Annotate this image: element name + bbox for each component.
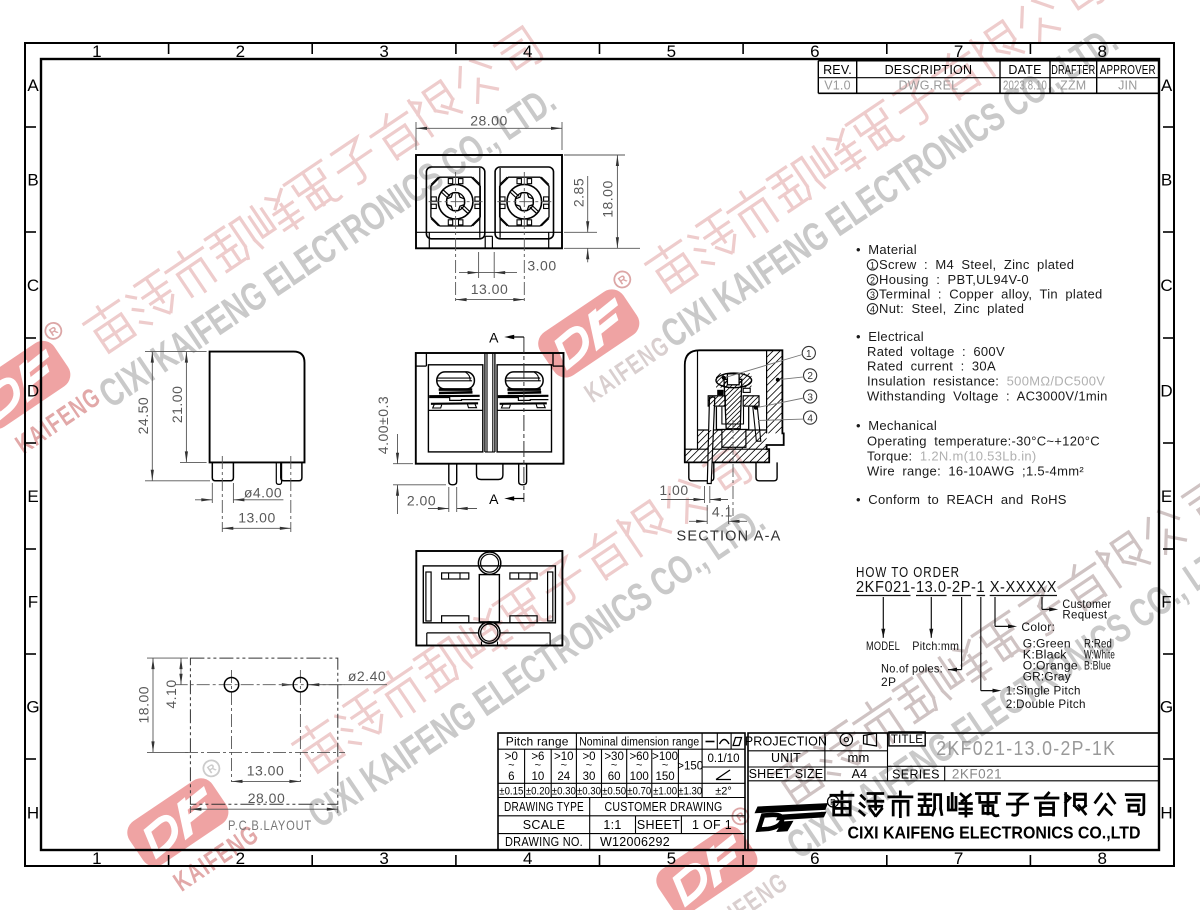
svg-text:1: 1 — [806, 349, 812, 360]
svg-text:2:Double Pitch: 2:Double Pitch — [1006, 697, 1086, 711]
svg-text:28.00: 28.00 — [248, 790, 286, 806]
svg-text:10: 10 — [532, 771, 545, 783]
svg-text:~: ~ — [561, 760, 567, 772]
svg-text:7: 7 — [954, 849, 963, 868]
svg-text:~: ~ — [508, 760, 514, 772]
svg-text:3: 3 — [870, 290, 875, 300]
svg-text:±0.30: ±0.30 — [552, 786, 576, 798]
svg-text:DRAWING TYPE: DRAWING TYPE — [504, 800, 584, 814]
svg-text:MODEL: MODEL — [866, 639, 900, 653]
svg-text:4.1: 4.1 — [712, 504, 733, 520]
svg-text:DRAFTER: DRAFTER — [1051, 63, 1095, 77]
svg-text:APPROVER: APPROVER — [1100, 63, 1156, 77]
svg-text:13.00: 13.00 — [471, 281, 509, 297]
svg-text:2.00: 2.00 — [407, 493, 436, 509]
svg-text:2: 2 — [236, 849, 245, 868]
svg-text:3: 3 — [807, 392, 813, 403]
svg-text:13.00: 13.00 — [247, 763, 285, 779]
svg-text:2KF021-13.0-2P-1 X-XXXXX: 2KF021-13.0-2P-1 X-XXXXX — [856, 579, 1057, 596]
svg-text:GR:Gray: GR:Gray — [1023, 672, 1071, 684]
svg-text:• Conform to REACH and RoHS: • Conform to REACH and RoHS — [856, 492, 1067, 507]
svg-text:24: 24 — [557, 771, 570, 783]
svg-text:JIN: JIN — [1118, 79, 1137, 93]
svg-text:3: 3 — [379, 849, 388, 868]
svg-text:4: 4 — [870, 305, 875, 315]
svg-text:18.00: 18.00 — [136, 686, 152, 724]
svg-text:1: 1 — [92, 42, 101, 61]
svg-text:24.50: 24.50 — [135, 397, 151, 435]
svg-text:3.00: 3.00 — [527, 258, 556, 274]
svg-text:V1.0: V1.0 — [824, 79, 851, 93]
svg-text:150: 150 — [656, 771, 675, 783]
svg-text:F: F — [1161, 593, 1171, 612]
svg-text:G: G — [26, 698, 39, 717]
svg-text:4.10: 4.10 — [163, 679, 179, 708]
svg-text:A: A — [489, 330, 499, 346]
svg-text:C: C — [1160, 276, 1172, 295]
svg-text:~: ~ — [535, 760, 541, 772]
svg-text:28.00: 28.00 — [470, 113, 508, 129]
svg-text:ø4.00: ø4.00 — [244, 485, 282, 501]
svg-text:TITLE: TITLE — [891, 734, 923, 746]
svg-text:Pitch:mm: Pitch:mm — [912, 639, 959, 653]
svg-text:G: G — [1160, 698, 1173, 717]
svg-text:SERIES: SERIES — [892, 768, 940, 782]
svg-text:ø2.40: ø2.40 — [348, 668, 386, 684]
svg-text:6: 6 — [810, 849, 819, 868]
svg-text:Operating temperature:-30°C~+1: Operating temperature:-30°C~+120°C — [867, 434, 1100, 449]
svg-text:F: F — [28, 593, 38, 612]
svg-text:Rated voltage : 600V: Rated voltage : 600V — [867, 344, 1005, 359]
svg-text:PROJECTION: PROJECTION — [745, 735, 828, 749]
svg-text:±0.30: ±0.30 — [577, 786, 601, 798]
svg-text:±0.15: ±0.15 — [499, 786, 523, 798]
svg-text:D: D — [1160, 382, 1172, 401]
svg-text:H: H — [1160, 804, 1172, 823]
svg-text:2KF021: 2KF021 — [952, 767, 1002, 782]
svg-text:5: 5 — [667, 849, 676, 868]
svg-text:18.00: 18.00 — [600, 180, 616, 218]
svg-text:~: ~ — [662, 760, 668, 772]
svg-text:Torque: 1.2N.m(10.53Lb.in): Torque: 1.2N.m(10.53Lb.in) — [867, 449, 1037, 464]
svg-text:ZZM: ZZM — [1060, 79, 1086, 93]
svg-text:Request: Request — [1062, 608, 1107, 622]
svg-text:60: 60 — [608, 771, 621, 783]
svg-text:Nut: Steel, Zinc plated: Nut: Steel, Zinc plated — [879, 301, 1024, 316]
svg-text:~: ~ — [611, 760, 617, 772]
svg-text:±0.70: ±0.70 — [627, 786, 651, 798]
svg-text:1 OF 1: 1 OF 1 — [692, 818, 732, 832]
svg-text:CUSTOMER DRAWING: CUSTOMER DRAWING — [605, 800, 723, 814]
svg-text:±1.00: ±1.00 — [653, 786, 677, 798]
svg-text:A4: A4 — [852, 767, 868, 781]
svg-text:DATE: DATE — [1008, 63, 1041, 77]
svg-text:30: 30 — [583, 771, 596, 783]
svg-text:W12006292: W12006292 — [600, 835, 670, 849]
svg-text:SCALE: SCALE — [523, 818, 566, 832]
svg-text:21.00: 21.00 — [169, 386, 185, 424]
svg-text:Insulation resistance: 500MΩ/D: Insulation resistance: 500MΩ/DC500V — [867, 374, 1105, 389]
svg-text:Housing : PBT,UL94V-0: Housing : PBT,UL94V-0 — [879, 272, 1029, 287]
svg-text:5: 5 — [667, 42, 676, 61]
svg-text:B: B — [1161, 171, 1172, 190]
svg-text:• Mechanical: • Mechanical — [856, 418, 937, 433]
svg-text:1: 1 — [870, 261, 875, 271]
svg-text:DWG.REL: DWG.REL — [899, 79, 959, 93]
svg-text:~: ~ — [586, 760, 592, 772]
svg-text:Pitch range: Pitch range — [506, 735, 569, 749]
svg-text:8: 8 — [1097, 849, 1106, 868]
svg-text:13.00: 13.00 — [238, 510, 276, 526]
svg-text:Screw : M4 Steel, Zinc plated: Screw : M4 Steel, Zinc plated — [879, 257, 1074, 272]
svg-text:mm: mm — [847, 750, 869, 765]
svg-text:6: 6 — [508, 771, 514, 783]
svg-text:SHEET SIZE: SHEET SIZE — [749, 767, 824, 781]
svg-text:Withstanding Voltage : AC3000V: Withstanding Voltage : AC3000V/1min — [867, 389, 1108, 404]
svg-text:4: 4 — [523, 42, 532, 61]
svg-text:Terminal : Copper alloy, Tin p: Terminal : Copper alloy, Tin plated — [879, 287, 1103, 302]
svg-text:Nominal dimension range: Nominal dimension range — [579, 737, 699, 749]
svg-text:2: 2 — [807, 371, 813, 382]
svg-text:1:Single Pitch: 1:Single Pitch — [1006, 684, 1081, 698]
svg-text:DRAWING NO.: DRAWING NO. — [505, 835, 583, 849]
svg-text:2KF021-13.0-2P-1K: 2KF021-13.0-2P-1K — [936, 738, 1116, 760]
svg-text:1: 1 — [92, 849, 101, 868]
svg-text:2.85: 2.85 — [571, 178, 587, 207]
svg-text:8: 8 — [1097, 42, 1106, 61]
svg-text:4: 4 — [807, 413, 813, 424]
svg-text:B:Blue: B:Blue — [1084, 661, 1111, 673]
svg-text:2023.8.10: 2023.8.10 — [1003, 79, 1047, 93]
svg-text:A: A — [1161, 76, 1173, 95]
svg-text:Color:: Color: — [1021, 620, 1055, 634]
svg-text:SECTION A-A: SECTION A-A — [676, 529, 781, 545]
svg-text:±0.20: ±0.20 — [526, 786, 550, 798]
svg-text:Wire range: 16-10AWG ;1.5-4mm²: Wire range: 16-10AWG ;1.5-4mm² — [867, 464, 1084, 479]
svg-text:>150: >150 — [677, 761, 703, 773]
svg-text:1.00: 1.00 — [659, 482, 688, 498]
svg-text:• Material: • Material — [856, 242, 917, 257]
svg-text:B: B — [27, 171, 38, 190]
svg-text:~: ~ — [636, 760, 642, 772]
svg-text:±0.50: ±0.50 — [602, 786, 626, 798]
svg-text:D: D — [27, 382, 39, 401]
svg-text:±1.30: ±1.30 — [678, 786, 702, 798]
svg-text:3: 3 — [379, 42, 388, 61]
svg-text:No.of poles:: No.of poles: — [881, 662, 943, 676]
svg-text:E: E — [27, 487, 38, 506]
svg-text:6: 6 — [810, 42, 819, 61]
svg-text:2P: 2P — [881, 675, 896, 689]
svg-text:DESCRIPTION: DESCRIPTION — [885, 63, 973, 77]
svg-text:H: H — [27, 804, 39, 823]
svg-text:C: C — [27, 276, 39, 295]
svg-text:4.00±0.3: 4.00±0.3 — [375, 396, 391, 454]
svg-text:CIXI KAIFENG ELECTRONICS CO.,L: CIXI KAIFENG ELECTRONICS CO.,LTD — [848, 823, 1141, 843]
svg-text:Rated current : 30A: Rated current : 30A — [867, 359, 996, 374]
svg-text:E: E — [1161, 487, 1172, 506]
svg-text:• Electrical: • Electrical — [856, 329, 924, 344]
svg-text:100: 100 — [630, 771, 649, 783]
svg-text:UNIT: UNIT — [771, 751, 801, 765]
svg-text:2: 2 — [236, 42, 245, 61]
svg-text:7: 7 — [954, 42, 963, 61]
svg-text:P.C.B.LAYOUT: P.C.B.LAYOUT — [228, 817, 312, 833]
svg-text:REV.: REV. — [823, 63, 852, 77]
svg-text:1:1: 1:1 — [603, 818, 621, 832]
svg-text:SHEET: SHEET — [637, 818, 680, 832]
svg-text:±2°: ±2° — [715, 786, 732, 798]
svg-text:0.1/10: 0.1/10 — [708, 753, 740, 765]
svg-text:2: 2 — [870, 276, 875, 286]
svg-text:A: A — [489, 491, 499, 507]
svg-text:A: A — [27, 76, 39, 95]
svg-text:4: 4 — [523, 849, 532, 868]
